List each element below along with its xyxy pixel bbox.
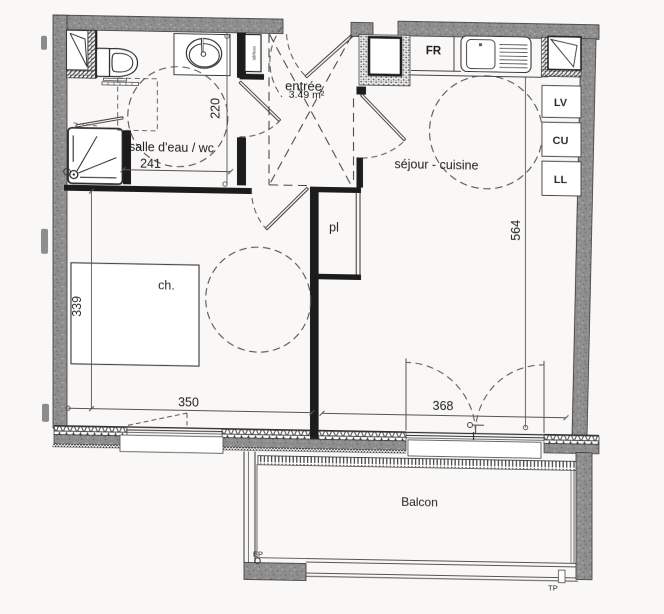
svg-text:TP: TP [548, 583, 558, 592]
svg-text:368: 368 [433, 399, 454, 413]
svg-text:564: 564 [509, 220, 523, 241]
svg-text:Balcon: Balcon [401, 495, 438, 510]
svg-text:3.49 m²: 3.49 m² [289, 89, 325, 102]
svg-text:FR: FR [426, 45, 442, 57]
svg-text:350: 350 [178, 395, 199, 409]
svg-text:pl: pl [329, 220, 339, 234]
svg-text:CU: CU [553, 135, 569, 147]
svg-text:tableau: tableau [252, 45, 257, 60]
svg-text:220: 220 [209, 98, 223, 119]
svg-text:339: 339 [70, 296, 84, 317]
svg-text:séjour - cuisine: séjour - cuisine [394, 157, 478, 173]
svg-text:241: 241 [140, 157, 161, 171]
svg-text:LL: LL [554, 174, 568, 186]
svg-text:salle d'eau / wc: salle d'eau / wc [129, 140, 214, 156]
svg-text:ch.: ch. [158, 278, 175, 292]
svg-text:EP: EP [253, 550, 263, 559]
svg-text:LV: LV [554, 97, 568, 109]
